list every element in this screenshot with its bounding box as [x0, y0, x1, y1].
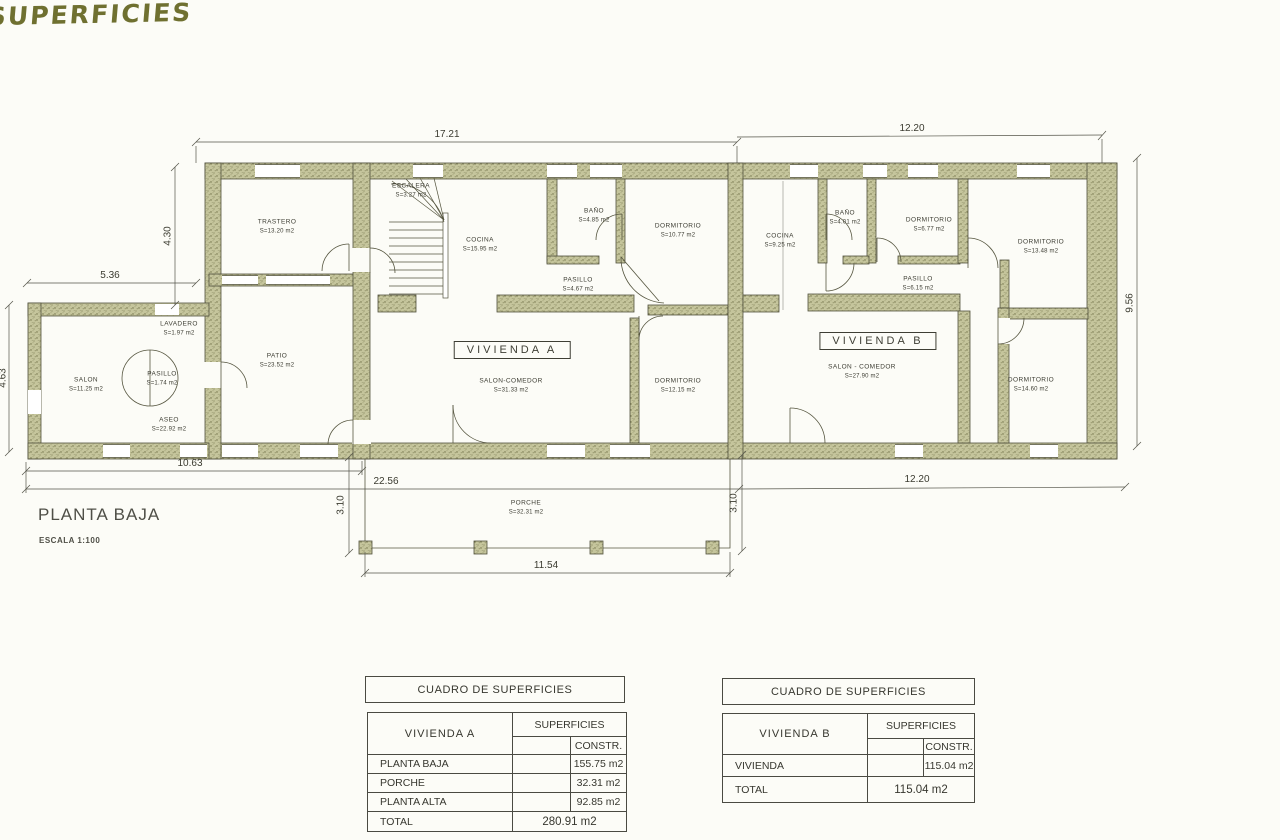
table-a: VIVIENDA A SUPERFICIES CONSTR. PLANTA BA… [367, 712, 627, 832]
table-a-total-label: TOTAL [368, 812, 513, 831]
room-label-dormitorio-a2: DORMITORIO S=12.15 m2 [655, 378, 701, 395]
room-label-pasillo-a: PASILLO S=4.67 m2 [563, 277, 594, 294]
floor-plan-drawing [0, 0, 1280, 840]
room-label-pasillo-b: PASILLO S=6.15 m2 [903, 276, 934, 293]
dimension-top-right: 12.20 [899, 123, 924, 134]
room-label-bano-b: BAÑO S=4.01 m2 [830, 210, 861, 227]
dimension-lines [5, 131, 1141, 577]
room-label-bano-a: BAÑO S=4.85 m2 [579, 208, 610, 225]
porche-outline [359, 459, 730, 554]
room-label-dormitorio-b2: DORMITORIO S=13.48 m2 [1018, 239, 1064, 256]
table-a-total-value: 280.91 m2 [513, 812, 626, 831]
table-b-row-spacer [868, 755, 924, 777]
table-a-row-label: PLANTA BAJA [368, 755, 513, 774]
dimension-bottom-total: 22.56 [373, 476, 398, 487]
scanned-floor-plan-sheet: SUPERFICIES [0, 0, 1280, 840]
room-label-pasillo-annex: PASILLO S=1.74 m2 [147, 371, 178, 388]
table-b-row-label: VIVIENDA [723, 755, 868, 777]
room-label-cocina-b: COCINA S=9.25 m2 [765, 233, 796, 250]
dimension-top-left: 17.21 [434, 129, 459, 140]
porche-pillars [359, 541, 719, 554]
table-a-col-sub: CONSTR. [571, 737, 626, 755]
plan-scale: ESCALA 1:100 [39, 536, 100, 545]
room-label-patio: PATIO S=23.52 m2 [260, 353, 295, 370]
room-label-dormitorio-b3: DORMITORIO S=14.60 m2 [1008, 377, 1054, 394]
room-label-trastero: TRASTERO S=13.20 m2 [258, 219, 297, 236]
dimension-left-mid: 5.36 [100, 270, 119, 281]
room-label-aseo: ASEO S=22.92 m2 [152, 417, 187, 434]
vivienda-b-badge: VIVIENDA B [819, 332, 936, 350]
dimension-left-upper: 4.30 [163, 226, 174, 245]
room-label-cocina-a: COCINA S=15.95 m2 [463, 237, 498, 254]
table-b: VIVIENDA B SUPERFICIES CONSTR. VIVIENDA … [722, 713, 975, 803]
dimension-bottom-right: 12.20 [904, 474, 929, 485]
table-a-row-value: 155.75 m2 [571, 755, 626, 774]
room-label-porche: PORCHE S=32.31 m2 [509, 500, 544, 517]
table-b-row-value: 115.04 m2 [924, 755, 974, 777]
table-a-col-sub-spacer [513, 737, 571, 755]
dimension-porche-depth-right: 3.10 [729, 493, 740, 512]
room-label-dormitorio-a1: DORMITORIO S=10.77 m2 [655, 223, 701, 240]
table-b-col-group: SUPERFICIES [868, 714, 974, 739]
table-a-row-value: 32.31 m2 [571, 774, 626, 793]
doors-layer [122, 214, 1024, 444]
table-a-col-group: SUPERFICIES [513, 713, 626, 737]
table-b-total-label: TOTAL [723, 777, 868, 802]
walls-layer [28, 163, 1117, 459]
table-b-row-header: VIVIENDA B [723, 714, 868, 755]
table-b-col-sub: CONSTR. [924, 739, 974, 755]
table-a-row-label: PLANTA ALTA [368, 793, 513, 812]
table-a-row-spacer [513, 755, 571, 774]
table-a-row-spacer [513, 774, 571, 793]
room-label-salon-comedor-a: SALON-COMEDOR S=31.33 m2 [479, 378, 542, 395]
room-label-dormitorio-b1: DORMITORIO S=6.77 m2 [906, 217, 952, 234]
table-b-total-value: 115.04 m2 [868, 777, 974, 802]
room-label-escalera: ESCALERA S=3.27 m2 [392, 183, 430, 200]
room-label-salon: SALON S=11.25 m2 [69, 377, 103, 394]
dimension-porche-width: 11.54 [534, 560, 558, 571]
table-a-row-header: VIVIENDA A [368, 713, 513, 755]
dimension-left-lower: 4.63 [0, 368, 9, 387]
table-a-row-label: PORCHE [368, 774, 513, 793]
table-b-col-sub-spacer [868, 739, 924, 755]
table-b-header: CUADRO DE SUPERFICIES [722, 678, 975, 705]
vivienda-a-badge: VIVIENDA A [454, 341, 571, 359]
room-label-salon-comedor-b: SALON - COMEDOR S=27.90 m2 [828, 364, 896, 381]
dimension-right-side: 9.56 [1125, 293, 1136, 312]
plan-title: PLANTA BAJA [38, 505, 160, 525]
dimension-bottom-annex: 10.63 [177, 458, 202, 469]
table-a-row-spacer [513, 793, 571, 812]
dimension-porche-depth-left: 3.10 [336, 495, 347, 514]
table-a-header: CUADRO DE SUPERFICIES [365, 676, 625, 703]
table-a-row-value: 92.85 m2 [571, 793, 626, 812]
room-label-lavadero: LAVADERO S=1.97 m2 [160, 321, 198, 338]
